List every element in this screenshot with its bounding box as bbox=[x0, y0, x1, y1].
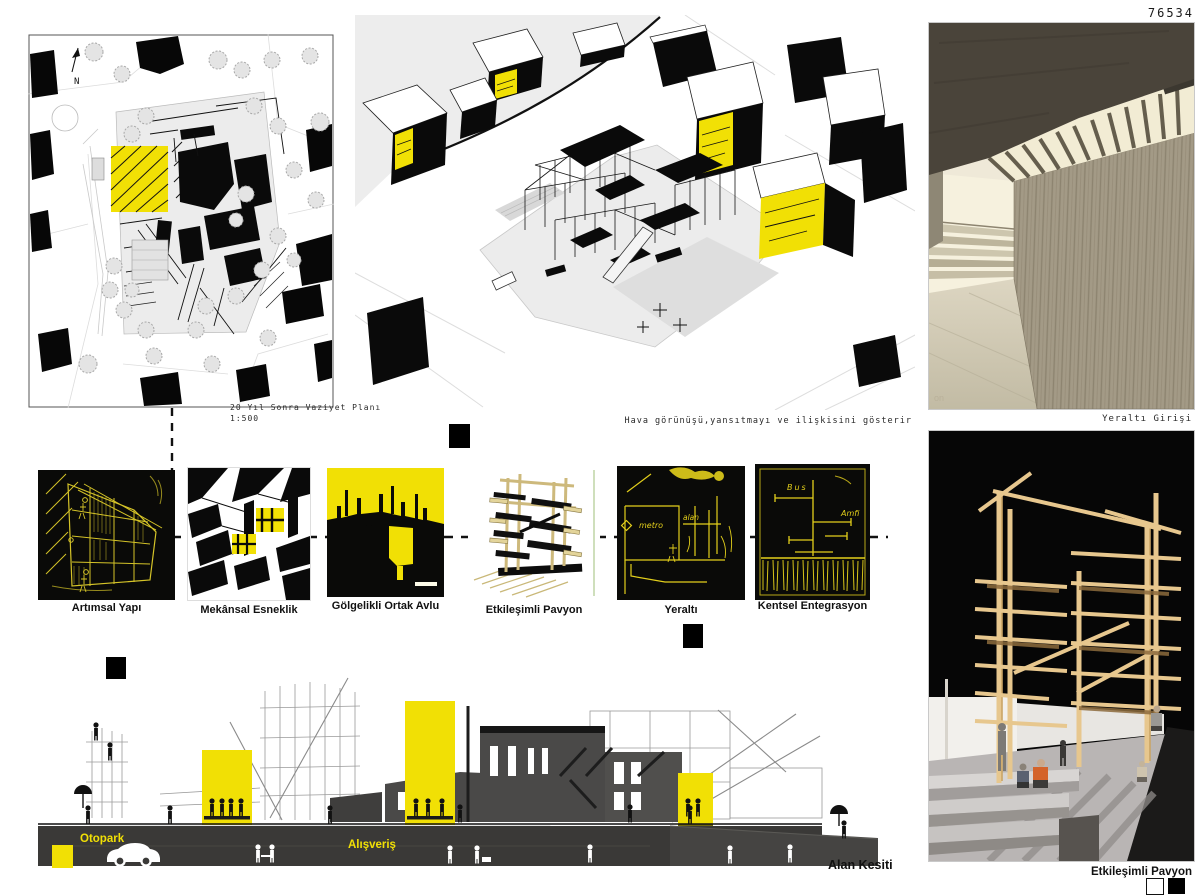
diagram-label-etkilesimli-pavyon: Etkileşimli Pavyon bbox=[468, 604, 600, 616]
axon-panel bbox=[355, 15, 915, 410]
diagram-kentsel-entegrasyon: Bus Amfi bbox=[755, 464, 870, 600]
competition-board: { "code": "76534", "site_plan": { "capti… bbox=[0, 0, 1200, 896]
legend-square-white bbox=[1146, 878, 1164, 895]
diagram-kentsel-sketch: Bus Amfi bbox=[755, 464, 870, 600]
umbrella-figure-left bbox=[74, 785, 92, 824]
annotation-bus: Bus bbox=[787, 483, 808, 492]
north-label: N bbox=[74, 77, 79, 87]
pavilion-photo-caption: Etkileşimli Pavyon bbox=[1040, 866, 1192, 878]
diagram-label-mekansal-esneklik: Mekânsal Esneklik bbox=[188, 604, 310, 616]
underground-band: Otopark Alışveriş bbox=[38, 826, 878, 866]
photo-watermark: on bbox=[934, 393, 944, 403]
pavilion-photo bbox=[929, 431, 1194, 861]
underground-photo-caption: Yeraltı Girişi bbox=[1040, 414, 1192, 424]
umbrella-figure-right bbox=[830, 805, 848, 839]
underground-photo: on bbox=[929, 23, 1194, 409]
otopark-label: Otopark bbox=[80, 833, 125, 845]
marker-square-mid bbox=[683, 624, 703, 648]
underground-photo-panel: on bbox=[928, 22, 1195, 410]
section-caption: Alan Kesiti bbox=[828, 858, 893, 872]
section-yellow-marker bbox=[52, 845, 73, 868]
diagram-label-artimsal-yapi: Artımsal Yapı bbox=[38, 602, 175, 614]
diagram-label-golgelikli: Gölgelikli Ortak Avlu bbox=[327, 600, 444, 612]
site-plan-panel: N bbox=[28, 34, 334, 408]
annotation-amfi: Amfi bbox=[840, 509, 860, 518]
diagram-etkilesimli-pavyon bbox=[468, 468, 600, 600]
hatch-band bbox=[763, 560, 863, 591]
diagram-label-kentsel: Kentsel Entegrasyon bbox=[755, 600, 870, 612]
legend-square-black bbox=[1168, 878, 1185, 894]
diagram-yeralti-sketch: metro alan bbox=[617, 466, 745, 600]
diagram-pavyon-sketch bbox=[468, 468, 600, 600]
diagram-mekansal-esneklik-sketch bbox=[188, 468, 310, 600]
annotation-alan: alan bbox=[683, 513, 699, 522]
diagram-yeralti: metro alan bbox=[617, 466, 745, 600]
site-plan-drawing: N bbox=[28, 34, 334, 408]
board-code: 76534 bbox=[1148, 6, 1194, 20]
diagram-golgelikli-sketch bbox=[327, 468, 444, 597]
section-panel: Otopark Alışveriş bbox=[30, 676, 905, 868]
diagram-artimsal-yapi-sketch bbox=[38, 470, 175, 600]
diagram-label-yeralti: Yeraltı bbox=[617, 604, 745, 616]
annotation-metro: metro bbox=[639, 521, 663, 530]
diagram-mekansal-esneklik bbox=[188, 468, 310, 600]
diagram-artimsal-yapi bbox=[38, 470, 175, 600]
diagram-golgelikli-ortak-avlu bbox=[327, 468, 444, 597]
alisveris-label: Alışveriş bbox=[348, 839, 396, 851]
axon-drawing bbox=[355, 15, 915, 410]
section-drawing: Otopark Alışveriş bbox=[30, 676, 905, 868]
pavilion-photo-panel bbox=[928, 430, 1195, 862]
